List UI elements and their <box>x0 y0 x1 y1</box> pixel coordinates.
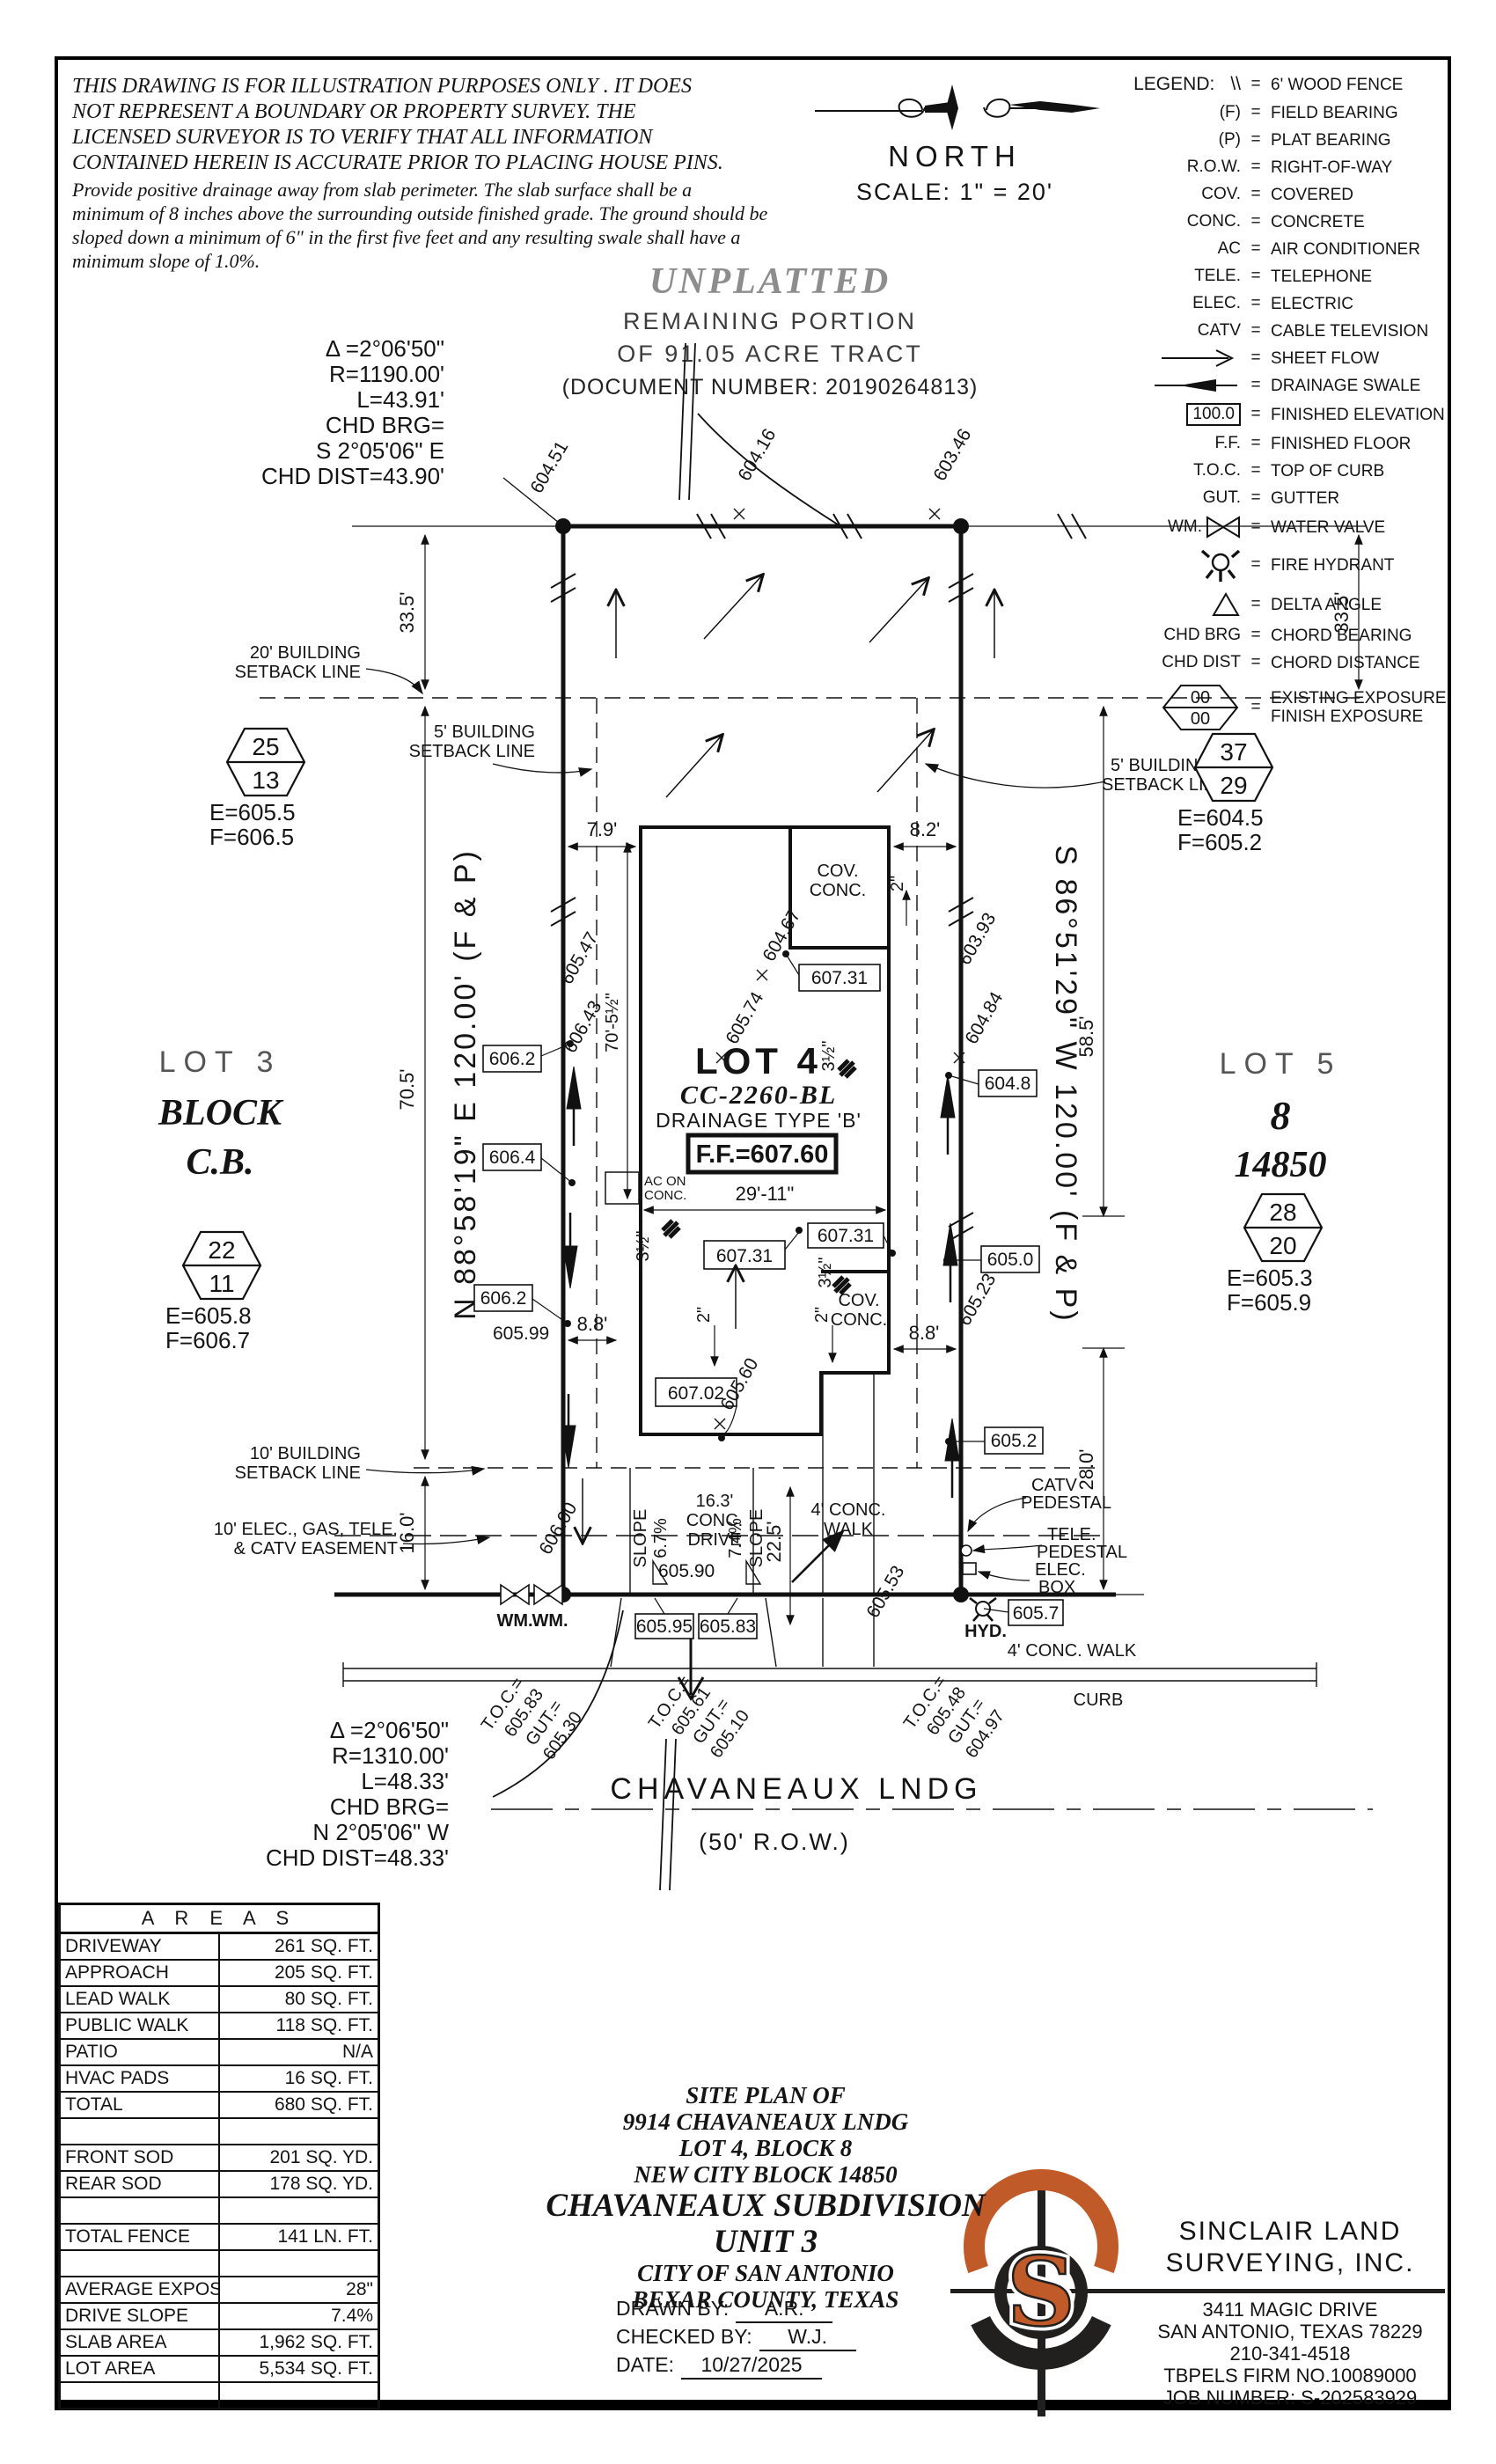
hex-finish: F=605.2 <box>1177 829 1262 855</box>
dim-70-5half: 70'-5½" <box>603 993 622 1052</box>
dim-3.5in-top: 3½" <box>819 1041 839 1072</box>
boxed-elev: 607.02 <box>668 1383 724 1404</box>
boxed-elev: 605.7 <box>1013 1603 1060 1624</box>
table-row: DRIVE SLOPE7.4% <box>60 2303 379 2329</box>
spot-elev: 606.00 <box>535 1499 581 1558</box>
firm-name: SINCLAIR LAND SURVEYING, INC. <box>1128 2216 1452 2279</box>
public-walk-label: 4' CONC. WALK <box>1008 1641 1137 1661</box>
dim-8.8-left: 8.8' <box>577 1313 608 1335</box>
ff-value: F.F.=607.60 <box>696 1140 829 1169</box>
hex-existing: E=605.8 <box>165 1302 252 1329</box>
firm-name-1: SINCLAIR LAND <box>1128 2216 1452 2248</box>
date-label: DATE: <box>616 2353 674 2376</box>
hyd-label: HYD. <box>964 1622 1007 1641</box>
elec-box-1: ELEC. <box>1035 1560 1086 1580</box>
drawn-by-value: A.R. <box>736 2295 832 2323</box>
exposure-marker-25-13: 25 13 E=605.5 F=606.5 <box>209 729 304 850</box>
signoff-block: DRAWN BY:A.R. CHECKED BY:W.J. DATE:10/27… <box>616 2295 933 2380</box>
setback5-left-line1: 5' BUILDING <box>434 722 535 742</box>
setback10-line2: SETBACK LINE <box>235 1463 361 1483</box>
hex-existing: E=605.3 <box>1227 1265 1313 1291</box>
table-row: TOTAL FENCE141 LN. FT. <box>60 2224 379 2250</box>
boxed-elev: 606.4 <box>489 1148 536 1168</box>
date-value: 10/27/2025 <box>681 2351 822 2380</box>
table-row: AVERAGE EXPOSURE28" <box>60 2277 379 2303</box>
dim-16.0: 16.0' <box>396 1512 418 1553</box>
cov-conc-top-2: CONC. <box>810 881 866 900</box>
table-row: APPROACH205 SQ. FT. <box>60 1960 379 1986</box>
boxed-elev: 607.31 <box>818 1226 874 1246</box>
table-row <box>60 2197 379 2224</box>
boxed-elev: 605.83 <box>700 1617 756 1637</box>
catv-pedestal-2: PEDESTAL <box>1021 1493 1111 1513</box>
cov-conc-top-1: COV. <box>817 862 858 881</box>
table-row: REAR SOD178 SQ. YD. <box>60 2171 379 2197</box>
drive-dim: 16.3' <box>696 1492 734 1511</box>
hex-top: 37 <box>1220 738 1247 766</box>
unit-label: UNIT 3 <box>546 2224 986 2260</box>
boxed-elev: 606.2 <box>480 1288 527 1309</box>
boxed-elev: 605.95 <box>636 1617 693 1637</box>
spot-elev: 605.99 <box>493 1324 549 1344</box>
spot-elev: 605.53 <box>862 1562 908 1621</box>
dim-33.5-right: 33.5' <box>1331 591 1353 633</box>
hex-bottom: 20 <box>1269 1232 1296 1259</box>
table-row <box>60 2250 379 2277</box>
firm-address: 3411 MAGIC DRIVE SAN ANTONIO, TEXAS 7822… <box>1128 2299 1452 2409</box>
dim-29-11: 29'-11" <box>736 1183 795 1205</box>
hex-bottom: 29 <box>1220 772 1247 799</box>
street-row: (50' R.O.W.) <box>699 1829 850 1855</box>
spot-elev: 604.67 <box>759 906 804 964</box>
hex-finish: F=606.7 <box>165 1327 250 1353</box>
slope-left-label: SLOPE <box>631 1509 650 1568</box>
street-name: CHAVANEAUX LNDG <box>610 1772 982 1806</box>
exposure-marker-37-29: 37 29 E=604.5 F=605.2 <box>1177 734 1272 855</box>
title-line: 9914 CHAVANEAUX LNDG <box>546 2108 986 2135</box>
cov-conc-low-1: COV. <box>838 1291 879 1310</box>
hex-existing: E=605.5 <box>209 799 296 825</box>
spot-elev: 604.51 <box>526 437 572 496</box>
drawn-by-label: DRAWN BY: <box>616 2297 729 2320</box>
ac-on-conc-1: AC ON <box>644 1174 686 1189</box>
dim-2in-low: 2" <box>812 1307 832 1323</box>
toc-groups: T.O.C.= 605.83 GUT.= 605.30 T.O.C.= 605.… <box>478 1672 1008 1764</box>
firm-phone: 210-341-4518 <box>1128 2343 1452 2365</box>
wm-label-2: WM. <box>532 1611 568 1631</box>
subdivision-name: CHAVANEAUX SUBDIVISION <box>546 2188 986 2224</box>
wm-label-1: WM. <box>496 1611 532 1631</box>
logo-s: S <box>1007 2237 1075 2348</box>
dim-2in-top: 2" <box>888 876 907 891</box>
table-row: PATION/A <box>60 2039 379 2065</box>
hex-top: 28 <box>1269 1199 1296 1226</box>
spot-elev: 606.43 <box>560 997 605 1056</box>
spot-elev: 605.74 <box>722 988 767 1047</box>
bearing-right: S 86°51'29" W 120.00' (F & P) <box>1049 845 1082 1323</box>
exposure-marker-22-11: 22 11 E=605.8 F=606.7 <box>165 1232 260 1353</box>
spot-elev: 605.90 <box>658 1561 715 1581</box>
ac-on-conc-2: CONC. <box>644 1188 686 1203</box>
hex-finish: F=605.9 <box>1227 1289 1311 1316</box>
tele-pedestal-2: PEDESTAL <box>1037 1543 1127 1562</box>
lead-walk-label-1: 4' CONC. <box>811 1500 886 1520</box>
table-row: LEAD WALK80 SQ. FT. <box>60 1986 379 2013</box>
boxed-elev: 607.31 <box>811 968 868 988</box>
dim-7.9: 7.9' <box>587 818 618 840</box>
elec-box-2: BOX <box>1038 1578 1075 1597</box>
setback20-line2: SETBACK LINE <box>235 663 361 682</box>
firm-job-number: JOB NUMBER: S-202583929 <box>1128 2387 1452 2409</box>
city-label: CITY OF SAN ANTONIO <box>546 2260 986 2286</box>
dim-3.5in-low: 3½" <box>816 1258 835 1288</box>
lot4-drainage: DRAINAGE TYPE 'B' <box>656 1109 862 1132</box>
checked-by-value: W.J. <box>759 2323 856 2351</box>
lot4-name: LOT 4 <box>695 1040 822 1082</box>
setback20-line1: 20' BUILDING <box>250 643 361 663</box>
areas-title: A R E A S <box>60 1904 379 1933</box>
slope-left-pct: 6.7% <box>651 1518 671 1558</box>
table-row: DRIVEWAY261 SQ. FT. <box>60 1933 379 1961</box>
table-row: SLAB AREA1,962 SQ. FT. <box>60 2329 379 2356</box>
lead-walk-label-2: WALK <box>824 1520 874 1539</box>
table-row: PUBLIC WALK118 SQ. FT. <box>60 2013 379 2039</box>
hex-top: 25 <box>252 733 279 760</box>
hex-existing: E=604.5 <box>1177 804 1264 831</box>
easement-line1: 10' ELEC., GAS, TELE. <box>214 1520 398 1539</box>
firm-name-2: SURVEYING, INC. <box>1128 2248 1452 2279</box>
table-row <box>60 2382 379 2409</box>
table-row: HVAC PADS16 SQ. FT. <box>60 2065 379 2092</box>
tele-pedestal-1: TELE. <box>1047 1525 1096 1544</box>
table-row: LOT AREA5,534 SQ. FT. <box>60 2356 379 2382</box>
dim-70.5: 70.5' <box>396 1068 418 1110</box>
hex-finish: F=606.5 <box>209 824 294 850</box>
dim-33.5-left: 33.5' <box>396 591 418 633</box>
dim-8.8-right: 8.8' <box>909 1322 940 1344</box>
firm-tbpels: TBPELS FIRM NO.10089000 <box>1128 2365 1452 2387</box>
spot-elev: 603.46 <box>929 425 975 484</box>
cov-conc-low-2: CONC. <box>831 1310 887 1330</box>
title-line: LOT 4, BLOCK 8 <box>546 2135 986 2161</box>
boxed-elev: 606.2 <box>489 1049 536 1069</box>
title-line: SITE PLAN OF <box>546 2082 986 2108</box>
easement-line2: & CATV EASEMENT <box>234 1539 398 1558</box>
hex-top: 22 <box>208 1236 235 1264</box>
boxed-elev: 604.8 <box>985 1074 1031 1094</box>
title-block: SITE PLAN OF 9914 CHAVANEAUX LNDG LOT 4,… <box>546 2082 986 2313</box>
table-row: FRONT SOD201 SQ. YD. <box>60 2145 379 2171</box>
setback5-left-line2: SETBACK LINE <box>409 742 535 761</box>
firm-street: 3411 MAGIC DRIVE <box>1128 2299 1452 2321</box>
slope-right-pct: 7.4% <box>726 1518 745 1558</box>
checked-by-label: CHECKED BY: <box>616 2325 752 2348</box>
exposure-marker-28-20: 28 20 E=605.3 F=605.9 <box>1227 1194 1322 1316</box>
table-row <box>60 2118 379 2145</box>
table-row: TOTAL680 SQ. FT. <box>60 2092 379 2118</box>
witness-lines <box>352 478 1366 1595</box>
catv-pedestal-1: CATV <box>1031 1476 1078 1495</box>
boxed-elev: 607.31 <box>716 1246 773 1266</box>
dim-2in-mid: 2" <box>694 1307 714 1323</box>
title-line: NEW CITY BLOCK 14850 <box>546 2161 986 2188</box>
areas-table: A R E A S DRIVEWAY261 SQ. FT. APPROACH20… <box>58 1903 380 2410</box>
lot4-cc: CC-2260-BL <box>680 1081 837 1110</box>
survey-site-plan-sheet: { "disclaimer": { "caps": "THIS DRAWING … <box>0 0 1496 2464</box>
slope-right-label: SLOPE <box>747 1509 766 1568</box>
curb-label: CURB <box>1074 1690 1124 1710</box>
dim-8.2: 8.2' <box>910 818 941 840</box>
dim-3.5in-left: 3½" <box>634 1231 653 1262</box>
setback10-line1: 10' BUILDING <box>250 1444 361 1463</box>
boxed-elev: 605.0 <box>987 1250 1034 1270</box>
hex-bottom: 11 <box>209 1270 234 1297</box>
hex-bottom: 13 <box>252 766 279 794</box>
dim-28.0: 28.0' <box>1075 1448 1097 1490</box>
bearing-left: N 88°58'19" E 120.00' (F & P) <box>449 848 482 1320</box>
firm-city: SAN ANTONIO, TEXAS 78229 <box>1128 2321 1452 2343</box>
spot-elev: 604.84 <box>961 988 1007 1047</box>
boxed-elev: 605.2 <box>991 1431 1038 1451</box>
